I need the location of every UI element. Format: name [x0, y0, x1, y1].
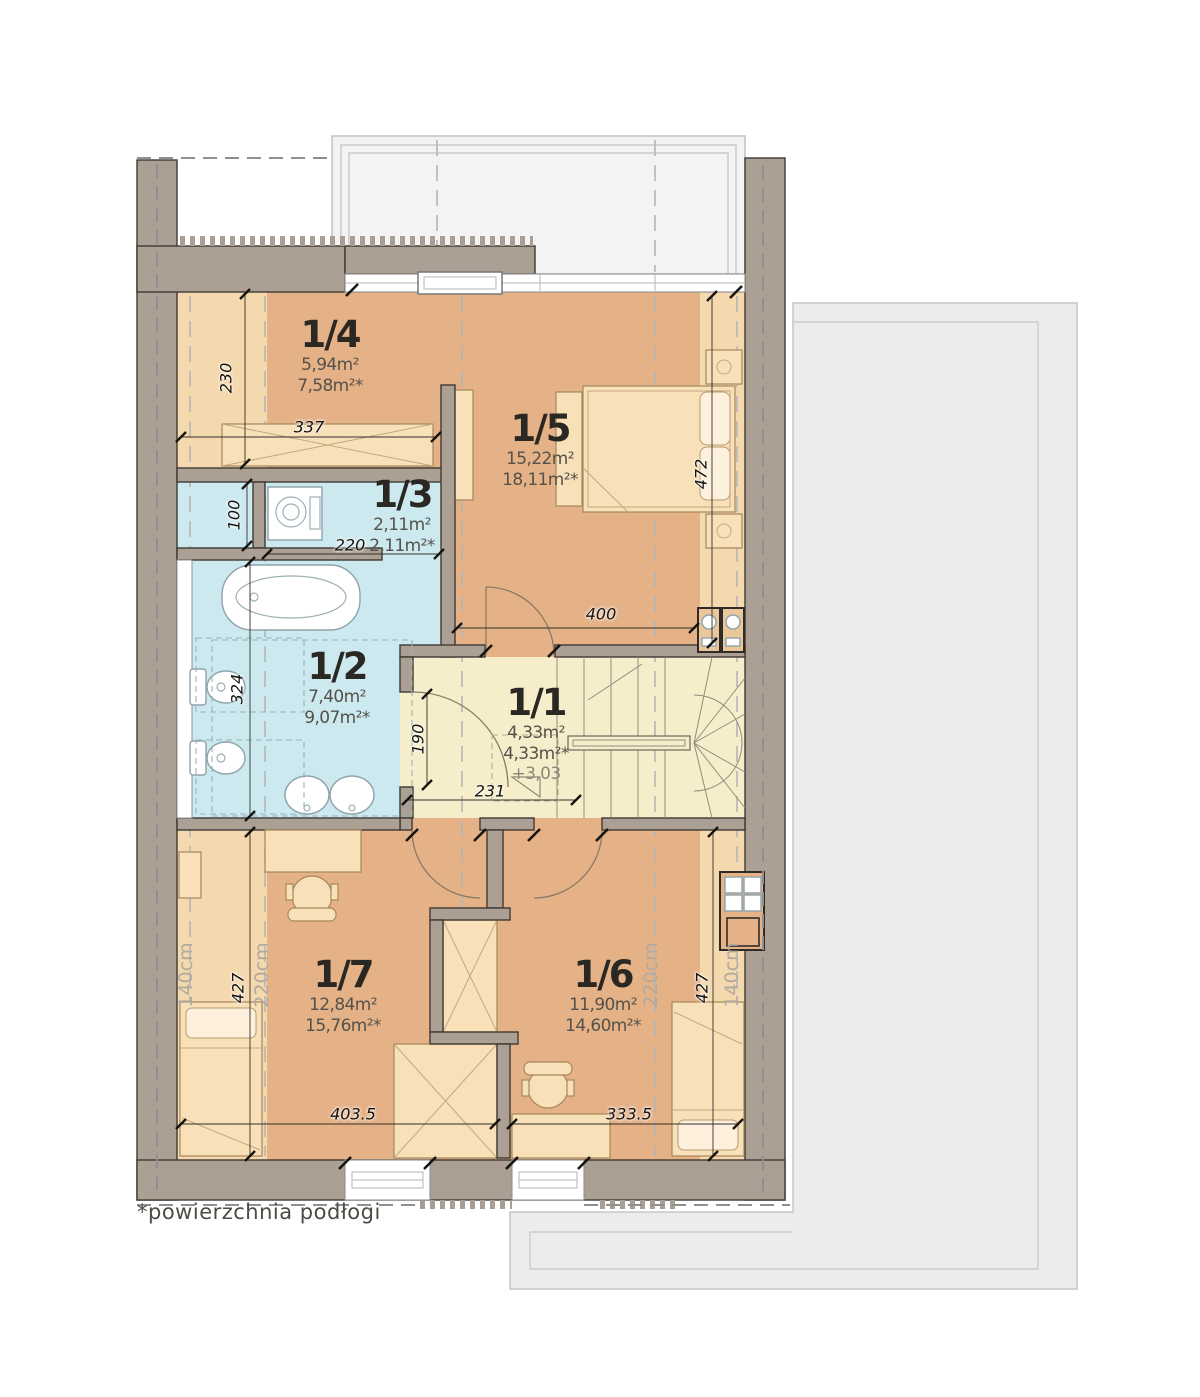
bathtub: [222, 565, 360, 630]
sink-left: [285, 776, 329, 814]
washing-machine: [268, 487, 322, 540]
bidet: [190, 741, 245, 775]
shelf-room-1-7: [179, 852, 201, 898]
floor-plan-drawing: [0, 0, 1200, 1397]
nightstand-top: [706, 350, 742, 384]
bed-room-1-6: [672, 1002, 744, 1156]
toilet: [190, 669, 245, 705]
sink-right: [330, 776, 374, 814]
stair-handrail: [568, 736, 690, 750]
terrace-door: [418, 272, 502, 294]
window-bottom-right: [512, 1160, 584, 1200]
chimney-block: [720, 872, 764, 950]
desk-room-1-6: [512, 1114, 610, 1158]
window-bottom-left: [345, 1160, 430, 1200]
closet-lower: [394, 1044, 497, 1158]
vent-flues: [698, 608, 744, 652]
wardrobe-room-1-4: [222, 424, 433, 466]
closet-upper: [443, 920, 497, 1032]
terrace-glazing: [345, 272, 745, 294]
floor-plan: *powierzchnia podłogi 1/45,94m²7,58m²*1/…: [0, 0, 1200, 1397]
desk-room-1-7: [265, 830, 361, 872]
nightstand-bottom: [706, 514, 742, 548]
bed-bench: [556, 392, 582, 506]
